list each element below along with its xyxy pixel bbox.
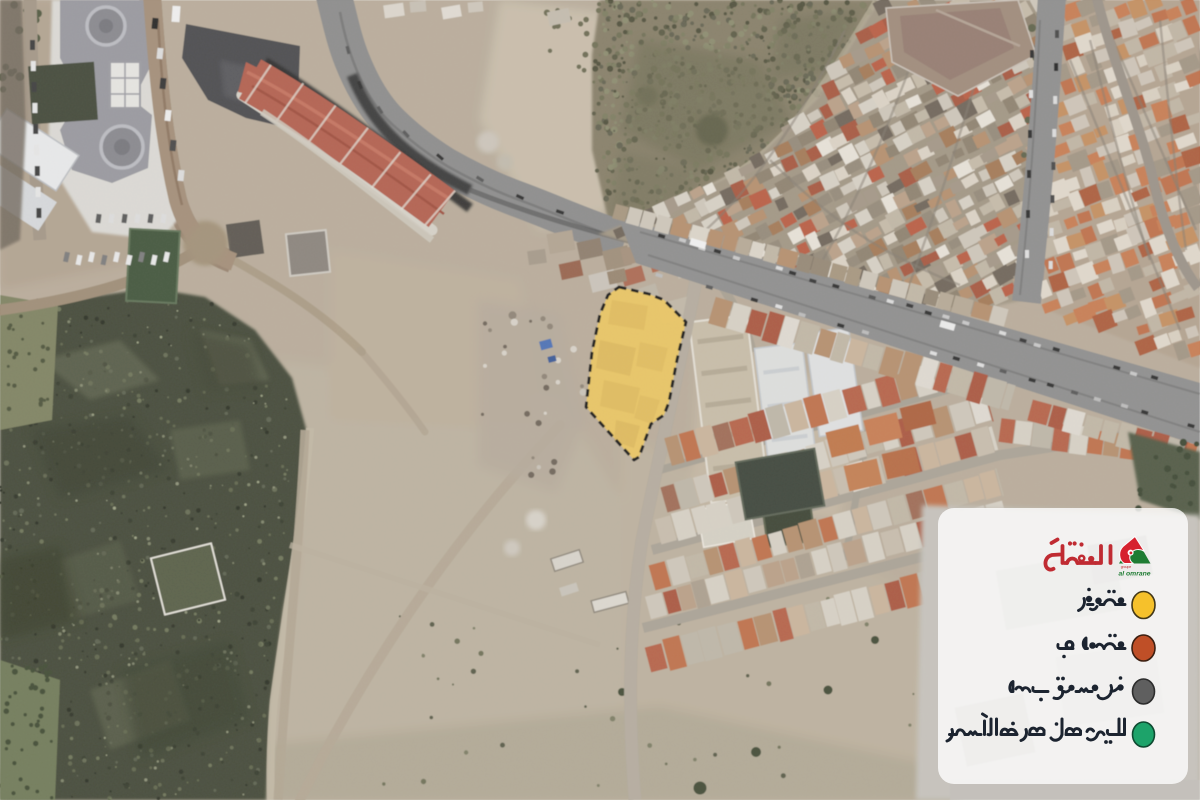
- svg-text:groupe: groupe: [1121, 565, 1132, 569]
- svg-text:al omrane: al omrane: [1118, 571, 1150, 578]
